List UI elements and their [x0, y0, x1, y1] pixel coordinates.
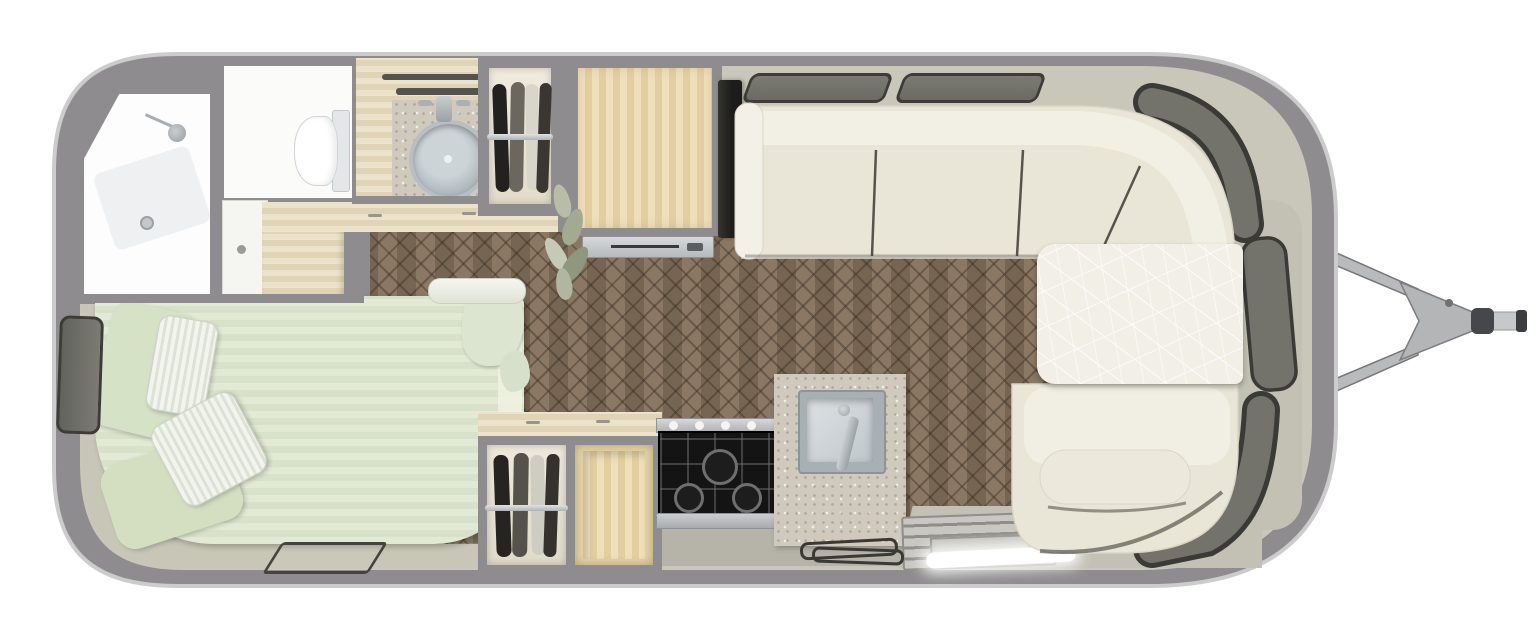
rv-floor-plan: [0, 0, 1536, 640]
lounge-group: [0, 0, 1536, 640]
dinette-table: [1037, 244, 1243, 384]
dinette-bench: [1012, 384, 1238, 553]
window-right-upper: [1240, 236, 1297, 391]
bench-seat-cushion: [1040, 450, 1190, 504]
sofa-armrest: [735, 103, 763, 259]
